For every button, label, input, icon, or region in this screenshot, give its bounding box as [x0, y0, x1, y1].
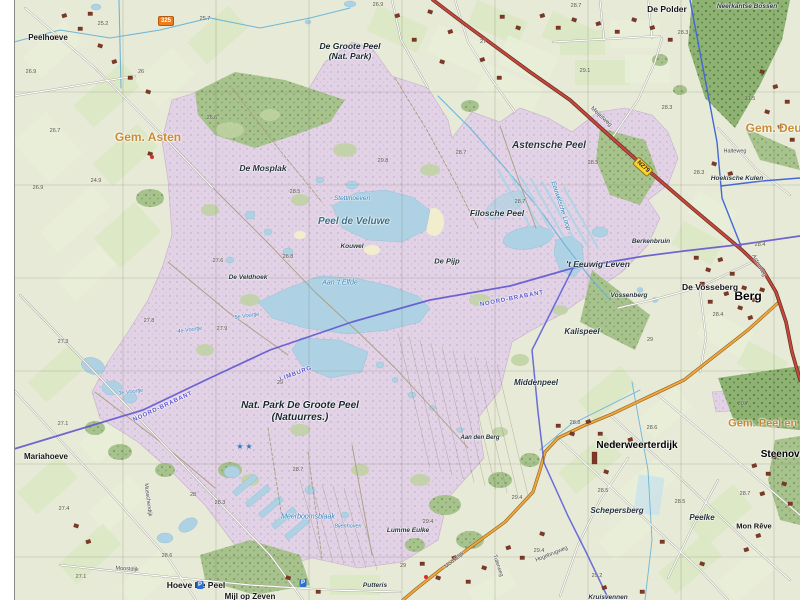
- map-sheet-margin: [0, 0, 15, 600]
- topo-map[interactable]: PeelhoeveDe Groote Peel(Nat. Park)De Pol…: [0, 0, 800, 600]
- map-canvas: [0, 0, 800, 600]
